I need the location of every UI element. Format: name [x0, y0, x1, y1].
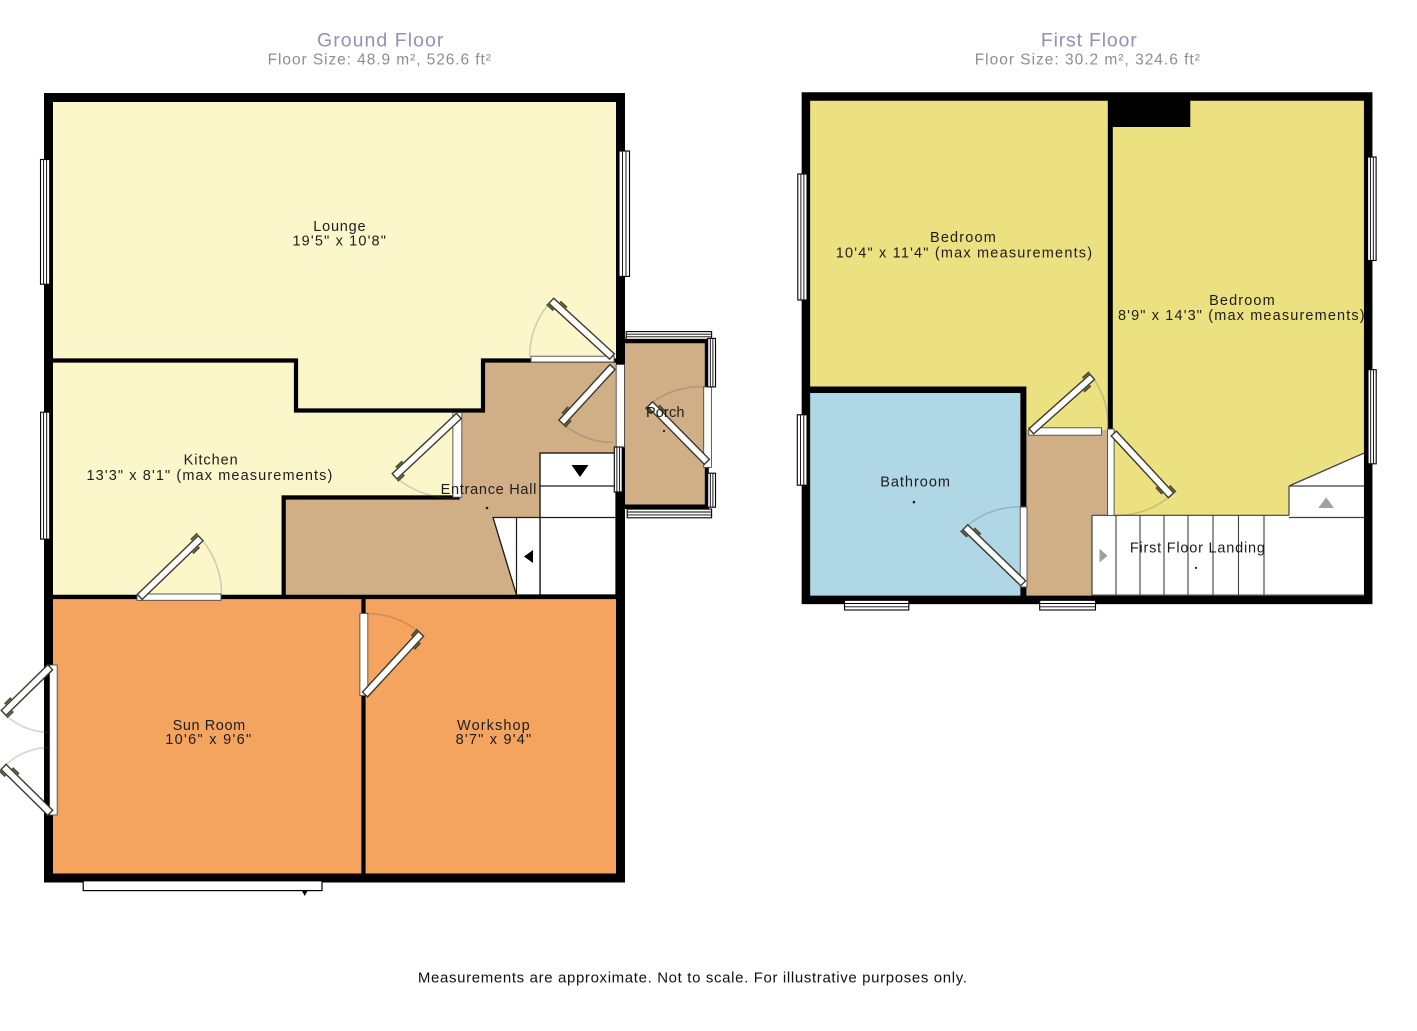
svg-text:8'7" x 9'4": 8'7" x 9'4" [456, 732, 532, 748]
svg-text:Ground Floor: Ground Floor [317, 30, 444, 52]
svg-text:Measurements are approximate.: Measurements are approximate. Not to sca… [418, 970, 967, 987]
svg-text:Bathroom: Bathroom [880, 474, 950, 490]
svg-text:Kitchen: Kitchen [184, 452, 238, 468]
svg-text:19'5" x 10'8": 19'5" x 10'8" [292, 234, 386, 250]
svg-text:First Floor: First Floor [1041, 30, 1137, 52]
svg-text:Floor Size: 30.2 m², 324.6 ft²: Floor Size: 30.2 m², 324.6 ft² [975, 52, 1200, 69]
svg-text:Bedroom: Bedroom [1209, 293, 1275, 309]
svg-text:10'4" x 11'4" (max measurement: 10'4" x 11'4" (max measurements) [836, 245, 1092, 261]
svg-text:Entrance Hall: Entrance Hall [441, 482, 537, 498]
svg-text:Floor Size: 48.9 m², 526.6 ft²: Floor Size: 48.9 m², 526.6 ft² [268, 52, 491, 69]
svg-text:Porch: Porch [646, 405, 684, 421]
svg-text:First Floor Landing: First Floor Landing [1130, 541, 1265, 557]
svg-text:Lounge: Lounge [313, 219, 365, 235]
svg-text:13'3" x 8'1" (max measurements: 13'3" x 8'1" (max measurements) [86, 468, 332, 484]
svg-text:Bedroom: Bedroom [930, 230, 996, 246]
svg-text:8'9" x 14'3" (max measurements: 8'9" x 14'3" (max measurements) [1118, 308, 1365, 324]
